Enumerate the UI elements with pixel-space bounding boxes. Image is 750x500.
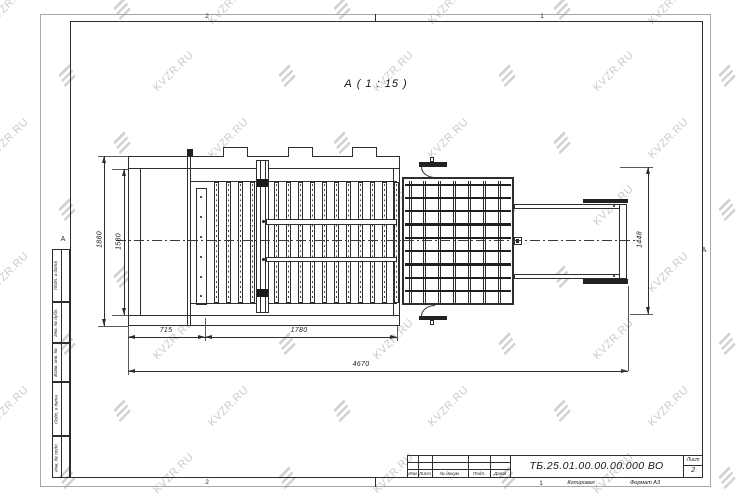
side-field-divider	[61, 382, 62, 436]
zone-label-bottom-right: 1	[536, 480, 546, 487]
watermark-text: KVZR.RU	[0, 103, 44, 161]
footer-format-label: Формат А3	[615, 480, 675, 486]
machine-line	[191, 303, 397, 304]
machine-line	[191, 181, 397, 182]
grate-rail	[266, 219, 398, 225]
dimension-arrow	[646, 167, 650, 174]
watermark-text: KVZR.RU	[0, 371, 44, 429]
side-field-label: Взам. инв. №	[53, 343, 60, 382]
extension-line	[128, 326, 129, 375]
top-tab	[223, 147, 248, 157]
dim-outer-height: 1880	[96, 224, 103, 256]
machine-solid-detail	[187, 149, 193, 156]
top-tab	[288, 147, 313, 157]
grate-slotted-bar	[286, 182, 291, 303]
dimension-arrow	[390, 335, 397, 339]
side-field-divider	[61, 249, 62, 302]
extension-line	[630, 314, 653, 315]
side-field-divider	[61, 343, 62, 382]
dimension-arrow	[621, 369, 628, 373]
dim-front-section: 715	[146, 327, 186, 334]
zone-tick-top	[375, 14, 376, 21]
side-field-divider	[61, 302, 62, 343]
drawing-sheet: KVZR.RUKVZR.RUKVZR.RUKVZR.RUKVZR.RUKVZR.…	[0, 0, 750, 500]
title-block-sheet-number: 2	[683, 467, 703, 474]
dimension-arrow	[198, 335, 205, 339]
grate-slotted-bar	[334, 182, 339, 303]
basket-grid-hline	[405, 223, 511, 225]
grate-slotted-bar	[250, 182, 255, 303]
view-scale-label: А ( 1 : 15 )	[338, 78, 414, 90]
grate-slotted-bar	[346, 182, 351, 303]
dimension-arrow	[102, 319, 106, 326]
support-beam-cap	[257, 289, 268, 297]
machine-outline	[514, 204, 621, 209]
zone-label-bottom-left: 2	[202, 479, 212, 486]
grate-slotted-bar	[310, 182, 315, 303]
grate-slotted-bar	[238, 182, 243, 303]
dim-total-length: 4670	[341, 361, 381, 368]
basket-grid-hline	[405, 237, 511, 239]
dimension-arrow	[646, 307, 650, 314]
footer-copied-label: Копировал	[551, 480, 611, 486]
title-block-designation: ТБ.25.01.00.00.00.000 ВО	[510, 455, 683, 478]
dim-inner-height: 1580	[116, 226, 123, 258]
basket-grid-hline	[405, 184, 511, 186]
zone-label-top-right: 1	[537, 13, 547, 20]
grate-slotted-bar	[274, 182, 279, 303]
zone-label-top-left: 2	[202, 13, 212, 20]
extension-line	[628, 286, 629, 371]
grate-slotted-bar	[322, 182, 327, 303]
title-block-hline	[683, 465, 703, 466]
title-block-column-label: Подп.	[468, 471, 490, 476]
title-block-sheet-label: Лист	[683, 457, 703, 463]
dimension-arrow	[128, 335, 135, 339]
machine-solid-detail	[583, 199, 628, 204]
dimension-arrow	[122, 308, 126, 315]
side-field-label: Инв. № дубл.	[53, 302, 60, 343]
machine-line	[140, 168, 141, 315]
watermark-logo-icon	[719, 466, 737, 491]
watermark-logo-icon	[719, 198, 737, 223]
machine-solid-detail	[419, 162, 447, 167]
grate-slotted-bar	[298, 182, 303, 303]
basket-grid-hline	[405, 197, 511, 199]
side-field-label: Инв. № подл.	[53, 436, 60, 478]
title-block-column-label: Изм	[407, 471, 419, 476]
basket-grid-hline	[405, 250, 511, 252]
dim-grate-section: 1780	[279, 327, 319, 334]
grate-slotted-bar	[214, 182, 219, 303]
title-block-column-label: Дата	[490, 471, 510, 476]
extension-line	[112, 315, 128, 316]
centerline	[116, 240, 638, 241]
title-block-hline	[407, 462, 510, 463]
zone-label-left-margin: А	[58, 236, 68, 243]
machine-outline	[196, 188, 207, 305]
zone-label-right-margin: А	[699, 247, 709, 254]
zone-tick-bottom	[375, 478, 376, 487]
dimension-line	[104, 156, 105, 326]
machine-solid-detail	[419, 316, 447, 321]
grate-slotted-bar	[226, 182, 231, 303]
grate-rail	[266, 257, 398, 263]
side-field-label: Подп. и дата	[53, 382, 60, 436]
dim-basket-height: 1448	[637, 224, 644, 256]
grate-slotted-bar	[358, 182, 363, 303]
basket-grid-hline	[405, 263, 511, 265]
machine-solid-detail	[583, 279, 628, 284]
dimension-arrow	[102, 156, 106, 163]
dimension-arrow	[122, 169, 126, 176]
grate-slotted-bar	[382, 182, 387, 303]
extension-line	[397, 326, 398, 341]
watermark-logo-icon	[719, 332, 737, 357]
basket-grid-hline	[405, 210, 511, 212]
machine-line	[128, 315, 400, 316]
watermark-text: KVZR.RU	[0, 0, 44, 27]
dimension-arrow	[205, 335, 212, 339]
grate-slotted-bar	[370, 182, 375, 303]
top-tab	[352, 147, 377, 157]
basket-grid-hline	[405, 290, 511, 292]
side-field-label: Подп. и дата	[53, 249, 60, 302]
dimension-line	[648, 167, 649, 314]
title-block-column-label: № докум.	[432, 471, 469, 476]
dimension-arrow	[128, 369, 135, 373]
machine-outline	[619, 204, 627, 280]
basket-grid-hline	[405, 277, 511, 279]
title-block-column-label: Лист	[418, 471, 431, 476]
dimension-line	[124, 169, 125, 316]
side-field-divider	[61, 436, 62, 478]
watermark-text: KVZR.RU	[0, 237, 44, 295]
grate-slotted-bar	[394, 182, 399, 303]
dimension-line	[128, 337, 397, 338]
dimension-line	[128, 371, 628, 372]
support-beam-cap	[257, 179, 268, 187]
watermark-logo-icon	[719, 64, 737, 89]
bolt-dot	[613, 205, 615, 207]
extension-line	[98, 326, 128, 327]
machine-outline	[430, 320, 434, 325]
